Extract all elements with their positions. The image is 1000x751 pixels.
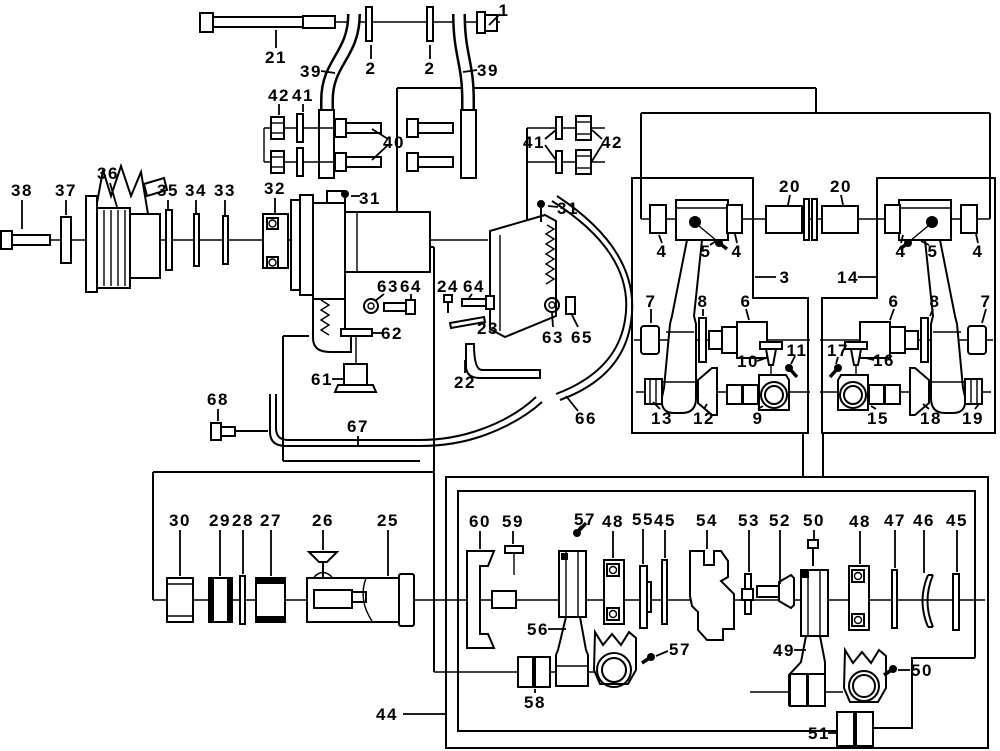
ring-27: [256, 578, 285, 622]
bushing-58: [518, 657, 550, 687]
bolt-68: [211, 423, 268, 440]
part-label-32: 32: [264, 179, 286, 198]
tube-66: [552, 196, 632, 400]
part-label-45: 45: [654, 511, 676, 530]
part-label-39: 39: [477, 61, 499, 80]
part-label-17: 17: [827, 341, 849, 360]
sleeve-30: [167, 578, 193, 622]
part-label-50: 50: [803, 511, 825, 530]
pin-2-right: [427, 7, 433, 41]
part-label-20: 20: [830, 177, 852, 196]
part-label-6: 6: [889, 292, 900, 311]
part-label-57: 57: [574, 510, 596, 529]
disc-35: [166, 210, 172, 270]
nut-1: [477, 12, 497, 33]
bolt-50-top: [808, 540, 818, 566]
part-label-16: 16: [873, 351, 895, 370]
leader-line: [788, 195, 790, 205]
part-label-12: 12: [693, 409, 715, 428]
part-label-25: 25: [377, 511, 399, 530]
part-label-42: 42: [601, 133, 623, 152]
part-label-5: 5: [701, 242, 712, 261]
part-label-46: 46: [913, 511, 935, 530]
part-label-2: 2: [366, 59, 377, 78]
part-label-27: 27: [260, 511, 282, 530]
part-label-67: 67: [347, 417, 369, 436]
part-label-36: 36: [97, 164, 119, 183]
part-label-4: 4: [657, 242, 668, 261]
part-label-7: 7: [981, 292, 992, 311]
diagram-page: 1213922394241404142313138373635343332636…: [0, 0, 1000, 751]
disc-34: [194, 214, 199, 266]
pipe-22: [466, 344, 540, 378]
part-label-51: 51: [808, 724, 830, 743]
key-53: [742, 574, 753, 614]
part-label-52: 52: [769, 511, 791, 530]
part-label-42: 42: [268, 86, 290, 105]
part-label-57: 57: [669, 640, 691, 659]
part-label-18: 18: [920, 409, 942, 428]
plug-52: [757, 575, 794, 608]
cup-61: [335, 364, 376, 392]
part-label-5: 5: [928, 242, 939, 261]
pin-24: [444, 295, 452, 313]
part-label-3: 3: [780, 268, 791, 287]
part-label-47: 47: [884, 511, 906, 530]
bushing-51: [837, 712, 873, 746]
part-label-15: 15: [867, 409, 889, 428]
part-label-63: 63: [377, 277, 399, 296]
part-label-26: 26: [312, 511, 334, 530]
part-label-55: 55: [632, 510, 654, 529]
part-label-59: 59: [502, 512, 524, 531]
box-connector-lines: [803, 433, 823, 477]
part-label-44: 44: [376, 705, 398, 724]
part-label-1: 1: [499, 1, 510, 20]
bolt-57-lower: [642, 653, 655, 663]
pin-2-left: [366, 7, 372, 41]
bolt-64-right: [462, 296, 494, 309]
part-label-8: 8: [698, 292, 709, 311]
bearing-32: [263, 214, 288, 268]
shim-47: [892, 570, 897, 628]
pulley-36: [86, 166, 167, 292]
bracket-60: [467, 551, 516, 648]
washer-37: [61, 217, 71, 263]
part-label-53: 53: [738, 511, 760, 530]
bearing-cap-right: [844, 650, 886, 702]
part-label-38: 38: [11, 181, 33, 200]
disc-55: [640, 566, 651, 628]
part-label-31: 31: [359, 189, 381, 208]
part-label-41: 41: [292, 86, 314, 105]
part-label-9: 9: [753, 409, 764, 428]
couplings-20: [766, 199, 858, 240]
part-label-64: 64: [400, 277, 422, 296]
part-label-41: 41: [523, 133, 545, 152]
part-label-6: 6: [741, 292, 752, 311]
part-label-40: 40: [383, 133, 405, 152]
part-label-30: 30: [169, 511, 191, 530]
conrod-56: [556, 551, 588, 686]
part-label-28: 28: [232, 511, 254, 530]
exploded-parts-diagram: 1213922394241404142313138373635343332636…: [0, 0, 1000, 751]
part-label-66: 66: [575, 409, 597, 428]
shim-45-right: [953, 574, 959, 630]
part-label-39: 39: [300, 62, 322, 81]
part-label-24: 24: [437, 277, 459, 296]
part-label-19: 19: [962, 409, 984, 428]
part-label-45: 45: [946, 511, 968, 530]
cylinder-25: [307, 574, 414, 626]
ring-29: [209, 578, 232, 622]
bolt-64-left: [384, 300, 415, 314]
part-label-23: 23: [477, 319, 499, 338]
shim-45-left: [662, 560, 667, 624]
part-label-37: 37: [55, 181, 77, 200]
part-label-54: 54: [696, 511, 718, 530]
part-label-11: 11: [787, 341, 808, 360]
part-label-48: 48: [849, 512, 871, 531]
part-label-2: 2: [425, 59, 436, 78]
part-label-35: 35: [157, 181, 179, 200]
clutch-plate-assembly: [490, 215, 556, 337]
nut-65: [566, 297, 575, 314]
bearing-48-right: [849, 566, 869, 630]
part-label-58: 58: [524, 693, 546, 712]
part-label-14: 14: [837, 268, 859, 287]
part-label-49: 49: [773, 641, 795, 660]
part-label-63: 63: [542, 328, 564, 347]
bolt-38: [1, 231, 50, 249]
part-label-56: 56: [527, 620, 549, 639]
bolt-21: [200, 13, 335, 32]
part-label-50: 50: [911, 661, 933, 680]
part-label-34: 34: [185, 181, 207, 200]
part-label-31: 31: [557, 199, 579, 218]
part-label-4: 4: [896, 242, 907, 261]
part-label-60: 60: [469, 512, 491, 531]
part-label-64: 64: [463, 277, 485, 296]
bearing-48-left: [604, 560, 624, 624]
impeller-54: [690, 551, 734, 640]
part-label-61: 61: [311, 370, 333, 389]
leader-line: [982, 309, 986, 323]
spring-washer-46: [923, 575, 934, 627]
leader-line: [656, 651, 668, 656]
part-label-21: 21: [265, 48, 287, 67]
part-label-65: 65: [571, 328, 593, 347]
leader-line: [841, 195, 843, 205]
leader-line: [552, 313, 553, 327]
part-label-13: 13: [651, 409, 673, 428]
bearing-cap-left: [594, 632, 636, 687]
disc-33: [223, 216, 228, 264]
part-label-62: 62: [381, 324, 403, 343]
valve-26: [309, 552, 337, 577]
leader-line: [572, 315, 578, 327]
bottom-left-box: [153, 472, 434, 672]
part-label-29: 29: [209, 511, 231, 530]
part-label-68: 68: [207, 390, 229, 409]
pin-59: [505, 546, 523, 575]
part-label-10: 10: [737, 352, 759, 371]
part-label-33: 33: [214, 181, 236, 200]
crankcase-housing: [291, 191, 430, 352]
leader-line: [545, 145, 556, 160]
leader-line: [545, 130, 556, 139]
part-label-48: 48: [602, 512, 624, 531]
part-label-8: 8: [930, 292, 941, 311]
part-label-20: 20: [779, 177, 801, 196]
part-label-7: 7: [646, 292, 657, 311]
fork-rod-39-right: [459, 14, 476, 178]
shim-28: [240, 576, 245, 624]
part-label-4: 4: [732, 242, 743, 261]
part-label-4: 4: [973, 242, 984, 261]
part-label-22: 22: [454, 373, 476, 392]
tube-67: [270, 394, 542, 446]
